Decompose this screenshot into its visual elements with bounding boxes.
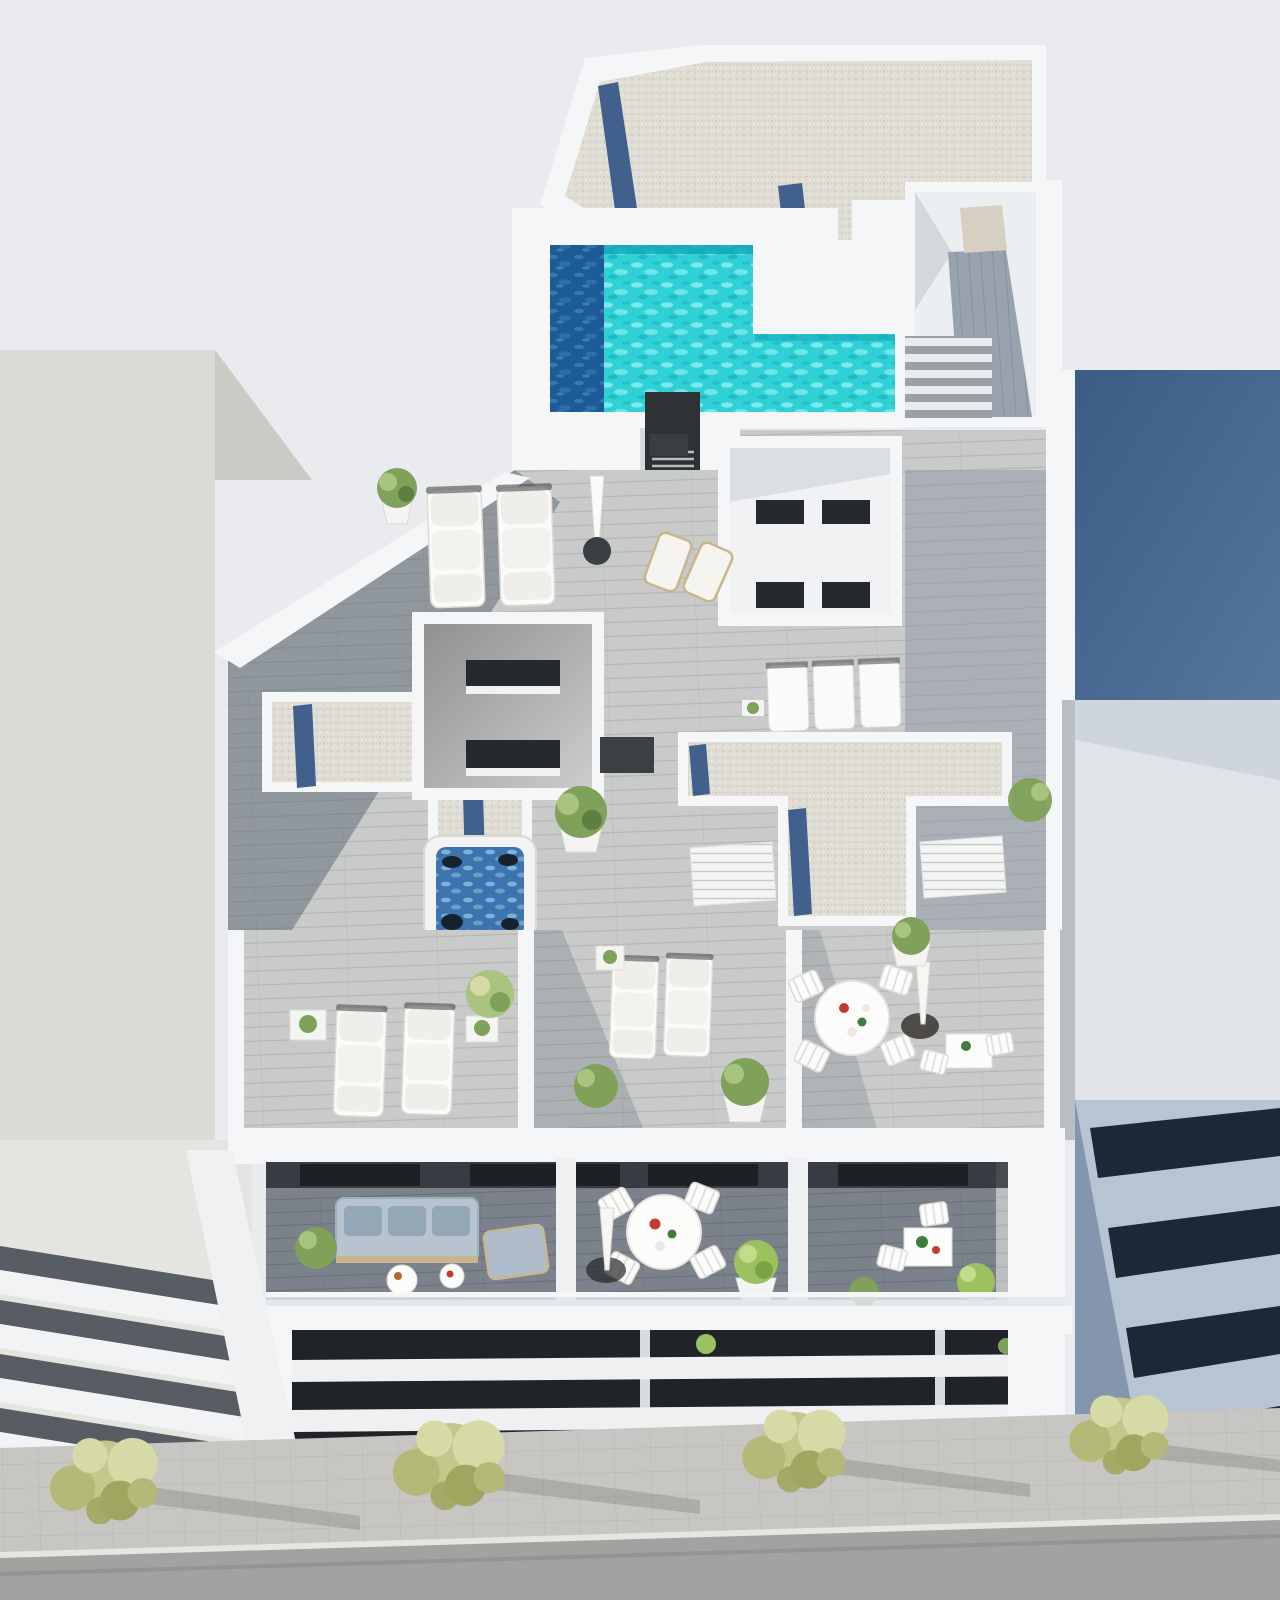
round-table (627, 1195, 701, 1269)
balustrade-handrail (266, 1292, 1066, 1297)
sun-lounger (426, 485, 486, 608)
right-neighbor-building (1056, 370, 1280, 1560)
balcony-plant (696, 1334, 716, 1354)
balcony-level (266, 1150, 1066, 1308)
coffee-table (387, 1265, 417, 1295)
small-table (946, 1034, 992, 1068)
right-parapet (1046, 180, 1062, 930)
armchair (483, 1224, 549, 1280)
louvered-shutter (690, 842, 776, 906)
louvered-shutter (920, 836, 1006, 898)
round-table (815, 981, 889, 1055)
architectural-render (0, 0, 1280, 1600)
ac-unit (650, 434, 688, 456)
sun-lounger (400, 1002, 455, 1115)
solar-panel-strip (293, 704, 316, 788)
sun-lounger (662, 953, 713, 1057)
exterior-stairs (900, 336, 992, 418)
balcony-divider (556, 1158, 576, 1302)
sun-lounger (496, 483, 556, 606)
small-table (904, 1228, 952, 1266)
lightwell-courtyard-2 (412, 612, 604, 800)
pool-deep-edge (548, 243, 604, 414)
sun-lounger (332, 1004, 387, 1117)
lightwell-courtyard-1 (718, 436, 902, 626)
terrace-door (600, 737, 654, 773)
balcony-slab (228, 1128, 1065, 1164)
lower-terraces (228, 917, 1060, 1140)
render-canvas (0, 0, 1280, 1600)
balcony-divider (788, 1158, 808, 1302)
roof-access-door (960, 205, 1007, 253)
